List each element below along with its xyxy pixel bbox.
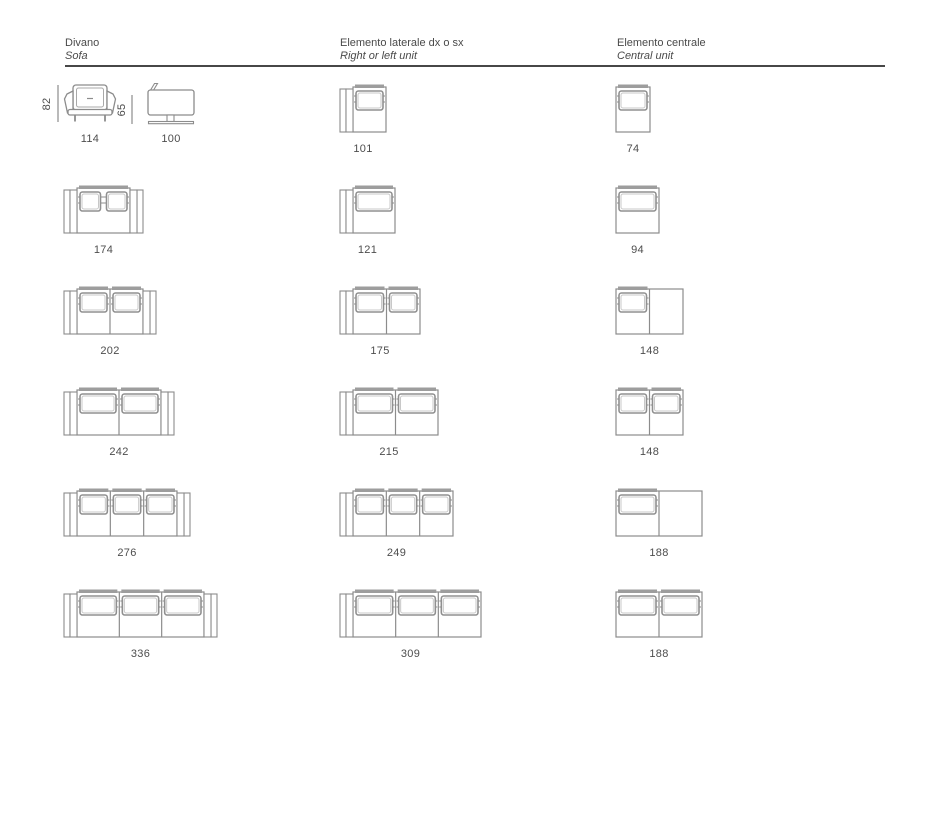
sofa-top-view — [62, 588, 219, 640]
sofa-top-view — [62, 285, 158, 337]
column-title: Divano — [65, 37, 99, 50]
column-header-sofa: Divano Sofa — [65, 37, 99, 63]
unit-width-label: 188 — [614, 648, 704, 660]
unit-width-label: 249 — [338, 547, 455, 559]
header-divider — [65, 65, 885, 67]
lateral-unit-top-view — [338, 83, 388, 135]
central-unit-top-view — [614, 588, 704, 640]
unit-width-label: 202 — [62, 345, 158, 357]
unit-width-label: 242 — [62, 446, 176, 458]
sofa-top-view — [62, 487, 192, 539]
armchair-side-view — [148, 84, 194, 124]
front-width-label: 114 — [81, 133, 99, 145]
column-subtitle: Right or left unit — [340, 50, 464, 63]
unit-width-label: 215 — [338, 446, 440, 458]
unit-cell: 188 — [614, 588, 704, 660]
unit-cell: 215 — [338, 386, 440, 458]
central-unit-top-view — [614, 386, 685, 438]
lateral-unit-top-view — [338, 588, 483, 640]
unit-cell: 175 — [338, 285, 422, 357]
unit-cell: 249 — [338, 487, 455, 559]
height-dimension-82: 82 — [41, 85, 58, 122]
unit-cell: 174 — [62, 184, 145, 256]
height-dimension-label: 82 — [41, 98, 53, 111]
armchair-front-view — [65, 85, 116, 122]
column-subtitle: Sofa — [65, 50, 99, 63]
central-unit-top-view — [614, 285, 685, 337]
unit-width-label: 148 — [614, 446, 685, 458]
unit-cell: 94 — [614, 184, 661, 256]
unit-width-label: 188 — [614, 547, 704, 559]
unit-cell: 148 — [614, 386, 685, 458]
unit-cell: 148 — [614, 285, 685, 357]
unit-width-label: 121 — [338, 244, 397, 256]
lateral-unit-top-view — [338, 285, 422, 337]
seat-height-dimension-label: 65 — [116, 104, 128, 117]
unit-width-label: 309 — [338, 648, 483, 660]
central-unit-top-view — [614, 184, 661, 236]
unit-width-label: 74 — [614, 143, 652, 155]
side-depth-label: 100 — [161, 133, 180, 145]
column-title: Elemento centrale — [617, 37, 706, 50]
unit-width-label: 175 — [338, 345, 422, 357]
unit-width-label: 276 — [62, 547, 192, 559]
unit-width-label: 148 — [614, 345, 685, 357]
unit-cell: 276 — [62, 487, 192, 559]
lateral-unit-top-view — [338, 386, 440, 438]
catalog-page: Divano Sofa Elemento laterale dx o sx Ri… — [0, 0, 930, 825]
sofa-top-view — [62, 184, 145, 236]
central-unit-top-view — [614, 83, 652, 135]
unit-cell: 188 — [614, 487, 704, 559]
unit-cell: 101 — [338, 83, 388, 155]
column-header-central-unit: Elemento centrale Central unit — [617, 37, 706, 63]
unit-width-label: 174 — [62, 244, 145, 256]
armchair-dimension-views: 82 114 65 100 — [40, 82, 212, 148]
unit-cell: 74 — [614, 83, 652, 155]
central-unit-top-view — [614, 487, 704, 539]
unit-width-label: 101 — [338, 143, 388, 155]
unit-cell: 336 — [62, 588, 219, 660]
seat-height-dimension-65: 65 — [116, 95, 132, 124]
lateral-unit-top-view — [338, 184, 397, 236]
column-subtitle: Central unit — [617, 50, 706, 63]
lateral-unit-top-view — [338, 487, 455, 539]
column-title: Elemento laterale dx o sx — [340, 37, 464, 50]
unit-width-label: 94 — [614, 244, 661, 256]
unit-cell: 309 — [338, 588, 483, 660]
sofa-top-view — [62, 386, 176, 438]
unit-cell: 242 — [62, 386, 176, 458]
unit-cell: 202 — [62, 285, 158, 357]
unit-width-label: 336 — [62, 648, 219, 660]
unit-cell: 121 — [338, 184, 397, 256]
column-header-lateral-unit: Elemento laterale dx o sx Right or left … — [340, 37, 464, 63]
